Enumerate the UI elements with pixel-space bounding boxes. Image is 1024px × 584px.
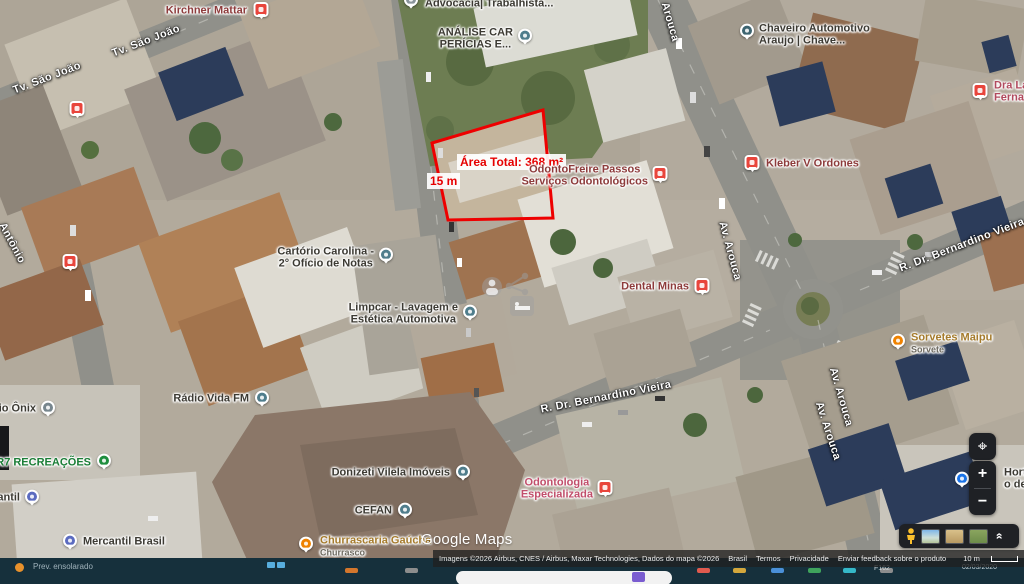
zoom-out-button[interactable]: − xyxy=(969,489,996,516)
dental-minas-label[interactable]: Dental Minas xyxy=(621,281,689,293)
taskbar-app-icon-fragment[interactable] xyxy=(697,568,710,573)
limpcar-lavagem-pin[interactable] xyxy=(463,305,477,319)
cartorio-carolina-pin[interactable] xyxy=(379,248,393,262)
donizeti-vilela-imoveis-pin[interactable] xyxy=(456,465,470,479)
churrascaria-gaucha-label[interactable]: Churrascaria GaúchaChurrasco xyxy=(320,536,431,559)
taskbar-app-icon-fragment[interactable] xyxy=(345,568,358,573)
chaveiro-automotivo-araujo-label[interactable]: Chaveiro AutomotivoAraujo | Chave... xyxy=(759,24,870,47)
taskbar-app-icon-fragment[interactable] xyxy=(405,568,418,573)
mercantil-brasil-label[interactable]: Mercantil Brasil xyxy=(83,536,165,548)
antil-partial-label[interactable]: antil xyxy=(0,492,20,504)
antil-partial-pin[interactable] xyxy=(25,490,39,504)
cefan-pin[interactable] xyxy=(398,503,412,517)
radio-vida-fm-pin[interactable] xyxy=(255,391,269,405)
dental-minas-pin[interactable] xyxy=(695,278,710,293)
unlabeled-pin-2-pin[interactable] xyxy=(63,254,78,269)
taskbar-app-icon-fragment[interactable] xyxy=(771,568,784,573)
odontologia-especializada-pin[interactable] xyxy=(598,480,613,495)
attribution-link[interactable]: Brasil xyxy=(728,554,747,563)
kirchner-mattar-pin[interactable] xyxy=(254,2,269,17)
person-icon xyxy=(482,277,502,297)
donizeti-vilela-imoveis-label[interactable]: Donizeti Vilela Imóveis xyxy=(332,467,450,479)
parcel-width-label: 15 m xyxy=(427,173,460,189)
taskbar-icon-fragment[interactable] xyxy=(277,562,285,568)
odontofreire-passos-label[interactable]: OdontoFreire PassosServiços Odontológico… xyxy=(521,165,648,188)
weather-fragment: Prev. ensolarado xyxy=(33,562,93,571)
edificio-onix-pin[interactable] xyxy=(41,401,55,415)
zoom-in-button[interactable]: + xyxy=(969,461,996,488)
search-box-icon xyxy=(632,572,645,582)
odontologia-especializada-label[interactable]: OdontologiaEspecializada xyxy=(521,478,593,501)
horto-lock-lock-icon[interactable] xyxy=(955,472,969,486)
r7-recreacoes-pin[interactable] xyxy=(97,454,111,468)
attribution-links: BrasilTermosPrivacidadeEnviar feedback s… xyxy=(728,554,946,563)
analise-car-pericias-label[interactable]: ANÁLISE CARPERÍCIAS E... xyxy=(438,28,513,51)
my-location-icon: ⌖ xyxy=(978,437,988,457)
kirchner-mattar-label[interactable]: Kirchner Mattar xyxy=(166,5,247,17)
radio-vida-fm-label[interactable]: Rádio Vida FM xyxy=(173,393,249,405)
dra-la-ferna-pin[interactable] xyxy=(973,83,988,98)
lodging-icon xyxy=(510,296,534,316)
cartorio-carolina-label[interactable]: Cartório Carolina -2° Ofício de Notas xyxy=(277,247,374,270)
attribution-link[interactable]: Enviar feedback sobre o produto xyxy=(838,554,946,563)
kleber-v-ordones-label[interactable]: Kleber V Ordones xyxy=(766,158,859,170)
taskbar-app-icon-fragment[interactable] xyxy=(808,568,821,573)
taskbar-app-icon-fragment[interactable] xyxy=(733,568,746,573)
zoom-control: + − xyxy=(969,461,996,515)
sorvetes-maipu-pin[interactable] xyxy=(891,334,905,348)
collapse-icon[interactable]: » xyxy=(992,533,1004,540)
advocacia-trabalhista-label[interactable]: Advocacia| Trabalhista... xyxy=(425,0,553,10)
taskbar-icon-fragment[interactable] xyxy=(267,562,275,568)
edificio-onix-label[interactable]: cio Ônix xyxy=(0,403,36,415)
mercantil-brasil-pin[interactable] xyxy=(63,534,77,548)
r7-recreacoes-label[interactable]: R7 RECREAÇÕES xyxy=(0,457,91,469)
analise-car-pericias-pin[interactable] xyxy=(518,29,532,43)
limpcar-lavagem-label[interactable]: Limpcar - Lavagem eEstética Automotiva xyxy=(349,303,458,326)
taskbar-app-icon-fragment[interactable] xyxy=(843,568,856,573)
scale-label: 10 m xyxy=(963,554,980,563)
sun-icon xyxy=(15,563,24,572)
cefan-label[interactable]: CEFAN xyxy=(355,505,392,517)
dra-la-ferna-label[interactable]: Dra LaFerna xyxy=(994,81,1024,104)
chaveiro-automotivo-araujo-pin[interactable] xyxy=(740,24,754,38)
google-maps-satellite-view: Área Total: 368 m² 15 m Tv. São JoãoTv. … xyxy=(0,0,1024,584)
pegman-bar: » xyxy=(899,524,1019,548)
attribution-link[interactable]: Privacidade xyxy=(790,554,829,563)
imagery-thumbnail-terrain[interactable] xyxy=(945,529,964,544)
attribution-bar: Imagens ©2026 Airbus, CNES / Airbus, Max… xyxy=(433,550,1024,567)
map-canvas[interactable] xyxy=(0,0,1024,584)
imagery-thumbnail-green[interactable] xyxy=(969,529,988,544)
attribution-link[interactable]: Termos xyxy=(756,554,781,563)
scale-bar xyxy=(991,556,1018,562)
imagery-thumbnail-sky[interactable] xyxy=(921,529,940,544)
unlabeled-pin-1-pin[interactable] xyxy=(70,101,85,116)
odontofreire-passos-pin[interactable] xyxy=(653,166,668,181)
imagery-credit: Imagens ©2026 Airbus, CNES / Airbus, Max… xyxy=(439,554,719,563)
horto-lock-label[interactable]: Horto de xyxy=(1004,468,1024,491)
google-maps-watermark: Google Maps xyxy=(421,531,512,548)
my-location-button[interactable]: ⌖ xyxy=(969,433,996,460)
kleber-v-ordones-pin[interactable] xyxy=(745,155,760,170)
roundabout xyxy=(783,279,843,339)
sorvetes-maipu-label[interactable]: Sorvetes MaipuSorvete xyxy=(911,333,992,356)
churrascaria-gaucha-pin[interactable] xyxy=(299,537,313,551)
pegman-icon[interactable] xyxy=(906,528,916,545)
